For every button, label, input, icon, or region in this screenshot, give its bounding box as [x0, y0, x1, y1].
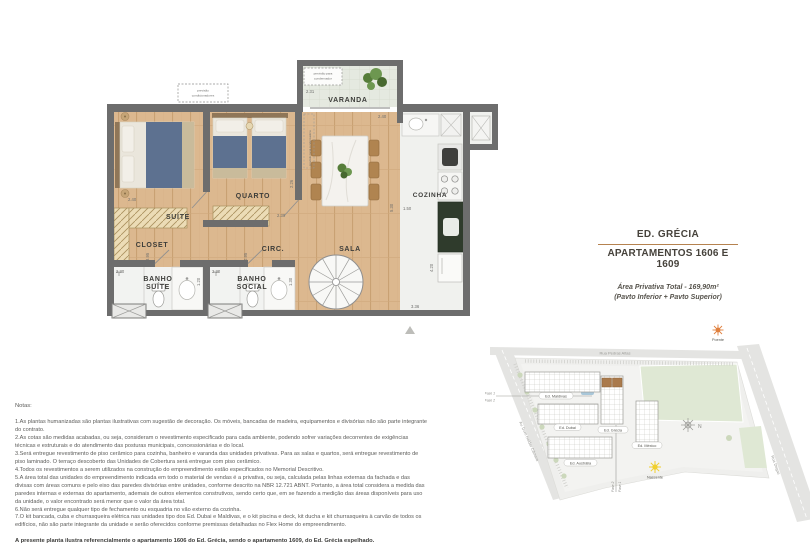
svg-text:1.30: 1.30 [288, 277, 293, 286]
svg-text:0.90: 0.90 [396, 89, 401, 98]
site-map-svg: Fase 1 Fase 2 Fase 2 Fase 1 Ed. Maldivas… [485, 320, 810, 535]
note-item: 1.As plantas humanizadas são plantas ilu… [15, 419, 427, 435]
building-dubai [538, 404, 598, 424]
conditioners-note: previsão [197, 89, 209, 93]
svg-text:2.30: 2.30 [212, 269, 221, 274]
svg-text:5.30: 5.30 [389, 203, 394, 212]
svg-text:2.30: 2.30 [277, 213, 286, 218]
fase2-left-label: Fase 2 [485, 399, 495, 403]
notes-section: Notas: 1.As plantas humanizadas são plan… [15, 402, 427, 546]
mexico-label: Ed. México [638, 444, 657, 448]
sun-west-icon [713, 325, 724, 336]
cozinha-label: COZINHA [413, 192, 448, 199]
svg-text:SUÍTE: SUÍTE [146, 282, 170, 291]
title-block: ED. GRÉCIA APARTAMENTOS 1606 E 1609 Área… [596, 229, 740, 303]
svg-text:SOCIAL: SOCIAL [237, 284, 268, 291]
fase2-bottom-label: Fase 2 [611, 482, 615, 492]
svg-text:1.50: 1.50 [403, 206, 412, 211]
note-item: 5.A área total das unidades do empreendi… [15, 475, 427, 507]
notes-heading: Notas: [15, 402, 427, 410]
banho-suite-label: BANHO [143, 276, 172, 283]
svg-text:1.20: 1.20 [196, 277, 201, 286]
note-item: 2.As cotas são medidas acabadas, ou seja… [15, 435, 427, 451]
note-item: 4.Todos os revestimentos a serem utiliza… [15, 467, 427, 475]
floors-line: (Pavto Inferior + Pavto Superior) [596, 293, 740, 303]
svg-text:2.40: 2.40 [128, 197, 137, 202]
svg-text:2.31: 2.31 [306, 89, 315, 94]
note-item: 7.O kit bancada, cuba e churrasqueira el… [15, 514, 427, 530]
sala-label: SALA [339, 246, 361, 253]
building-maldivas [525, 372, 600, 392]
note-item: 3.Será entregue revestimento de piso cer… [15, 451, 427, 467]
condenser-note: previsão para [314, 72, 333, 76]
notes-footer: A presente planta ilustra referencialmen… [15, 537, 427, 545]
street-top-label: Rua Pedras Altas [600, 351, 631, 356]
dubai-label: Ed. Dubai [559, 426, 576, 430]
svg-text:4.20: 4.20 [429, 263, 434, 272]
building-australia [548, 437, 612, 458]
apartments-title: APARTAMENTOS 1606 E 1609 [596, 248, 740, 270]
compass-icon [681, 418, 695, 432]
floor-plan: previsão condicionadores previsão para c… [100, 60, 500, 345]
closet-label: CLOSET [136, 242, 169, 249]
building-mexico [636, 401, 658, 442]
note-item: 6.Não será entregue qualquer tipo de fec… [15, 507, 427, 515]
entry-arrow-icon [405, 326, 415, 334]
varanda-label: VARANDA [328, 97, 367, 104]
spiral-stair [309, 255, 363, 309]
circ-label: CIRC. [262, 246, 285, 253]
floor-plan-svg: previsão condicionadores previsão para c… [100, 60, 500, 345]
brochure-page: { "title_block": { "building": "ED. GRÉC… [0, 0, 810, 540]
grecia-label: Ed. Grécia [604, 428, 623, 432]
fase1-left-label: Fase 1 [485, 392, 495, 396]
suite-label: SUÍTE [166, 212, 190, 221]
title-divider [598, 244, 738, 245]
suite-bed [115, 113, 194, 198]
quarto-label: QUARTO [236, 193, 270, 200]
sun-east-label: Nascente [647, 476, 663, 480]
private-area-line: Área Privativa Total - 169,90m² [596, 283, 740, 293]
local-condenser-note: previsão local condensadora [308, 130, 312, 166]
maldivas-label: Ed. Maldivas [545, 394, 567, 398]
svg-text:3.95: 3.95 [145, 252, 150, 261]
fase1-bottom-label: Fase 1 [618, 482, 622, 492]
svg-text:condensador: condensador [314, 77, 332, 81]
svg-text:condicionadores: condicionadores [192, 94, 215, 98]
site-map: Fase 1 Fase 2 Fase 2 Fase 1 Ed. Maldivas… [485, 320, 810, 535]
sun-west-label: Poente [712, 338, 724, 342]
svg-text:2.30: 2.30 [116, 269, 125, 274]
australia-label: Ed. Austrália [570, 461, 592, 465]
svg-text:2.40: 2.40 [378, 114, 387, 119]
building-title: ED. GRÉCIA [596, 229, 740, 240]
compass-n-label: N [698, 424, 702, 430]
svg-text:0.95: 0.95 [243, 252, 248, 261]
banho-social-label: BANHO [237, 276, 266, 283]
svg-text:2.26: 2.26 [289, 179, 294, 188]
svg-text:3.36: 3.36 [411, 304, 420, 309]
